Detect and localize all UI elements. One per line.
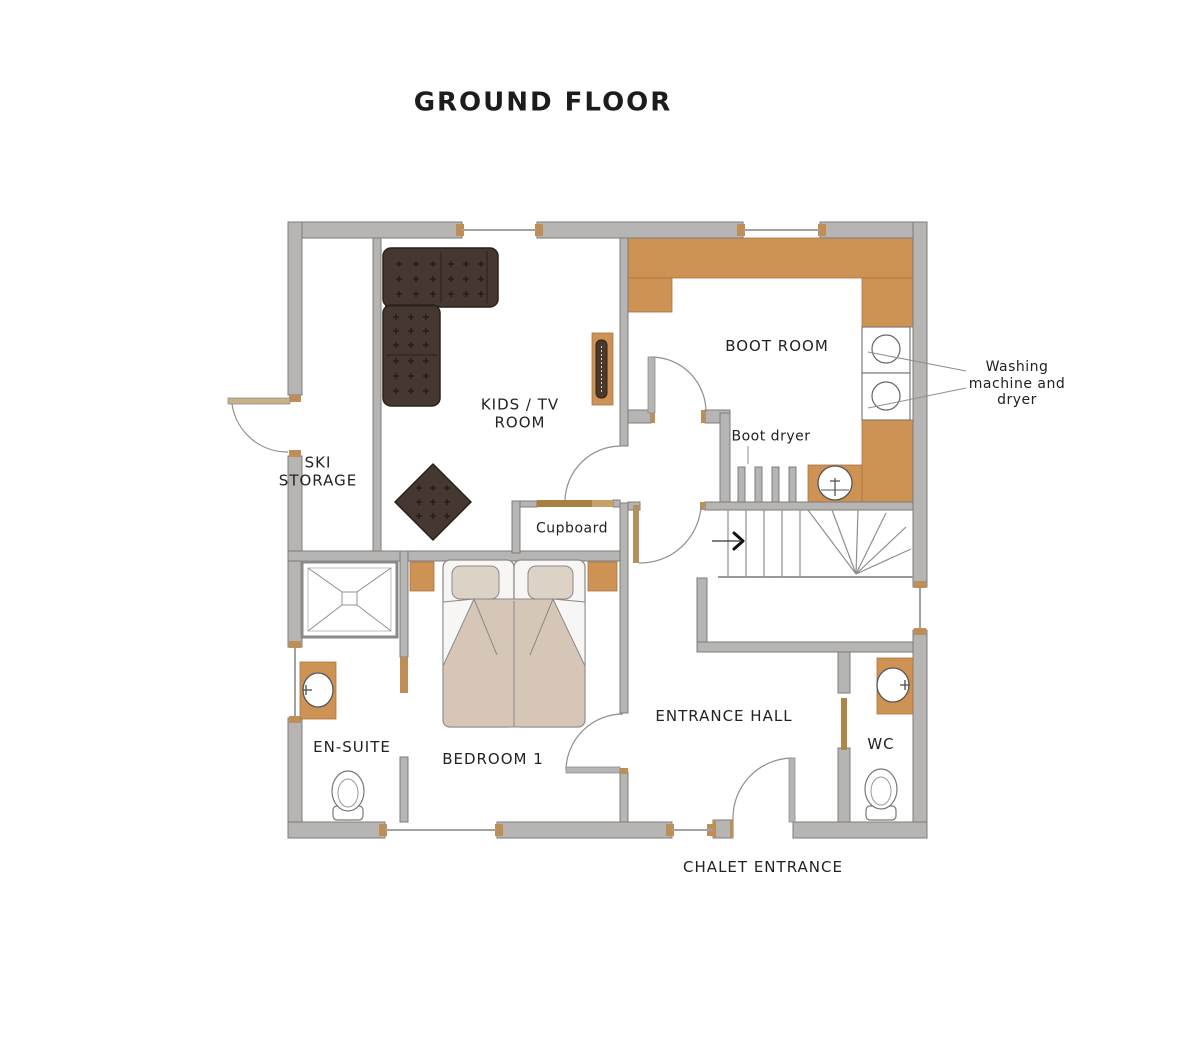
washing-machine-icon <box>862 327 910 373</box>
tv-icon <box>592 333 613 405</box>
wc-toilet-icon <box>865 769 897 820</box>
room-label-cupboard: Cupboard <box>536 521 608 538</box>
pillow <box>528 566 573 599</box>
room-label-kids-tv: KIDS / TV ROOM <box>481 396 559 431</box>
room-label-ski-storage: SKI STORAGE <box>279 454 357 489</box>
pillow <box>452 566 499 599</box>
chalet-entrance-door <box>789 758 795 822</box>
wc-sink-icon <box>877 658 913 714</box>
twin-beds-icon <box>443 560 585 727</box>
room-label-boot-room: BOOT ROOM <box>725 338 829 356</box>
room-label-entrance-hall: ENTRANCE HALL <box>655 708 792 726</box>
annotation-chalet-entrance: CHALET ENTRANCE <box>683 859 843 877</box>
boot-room-sink-icon <box>818 466 852 500</box>
ensuite-toilet-icon <box>332 771 364 820</box>
ensuite-sink-icon <box>300 662 336 719</box>
wc-door <box>841 698 847 750</box>
page-title: GROUND FLOOR <box>414 88 673 119</box>
cupboard-sliding-door-2 <box>592 500 613 507</box>
ensuite-door <box>400 657 408 693</box>
boot-room-door <box>648 357 655 413</box>
stair-hall-door <box>633 505 639 563</box>
shower-icon <box>302 562 397 637</box>
bedroom-door <box>566 767 620 773</box>
boot-dryer-rack-icon <box>738 446 796 502</box>
dryer-icon <box>862 373 910 420</box>
ski-storage-door <box>228 398 290 404</box>
annotation-washing-machine: Washing machine and dryer <box>969 359 1065 409</box>
staircase-icon <box>718 510 913 577</box>
floor-plan: GROUND FLOOR SKI STORAGE KIDS / TV ROOM … <box>0 0 1200 1039</box>
cupboard-sliding-door <box>537 500 592 507</box>
ottoman-icon <box>395 464 471 540</box>
room-label-wc: WC <box>867 736 894 754</box>
sofa-icon <box>383 248 498 406</box>
room-label-bedroom1: BEDROOM 1 <box>442 751 544 769</box>
annotation-boot-dryer: Boot dryer <box>732 429 811 446</box>
floor-plan-drawing <box>0 0 1200 1039</box>
room-label-en-suite: EN-SUITE <box>313 739 391 757</box>
